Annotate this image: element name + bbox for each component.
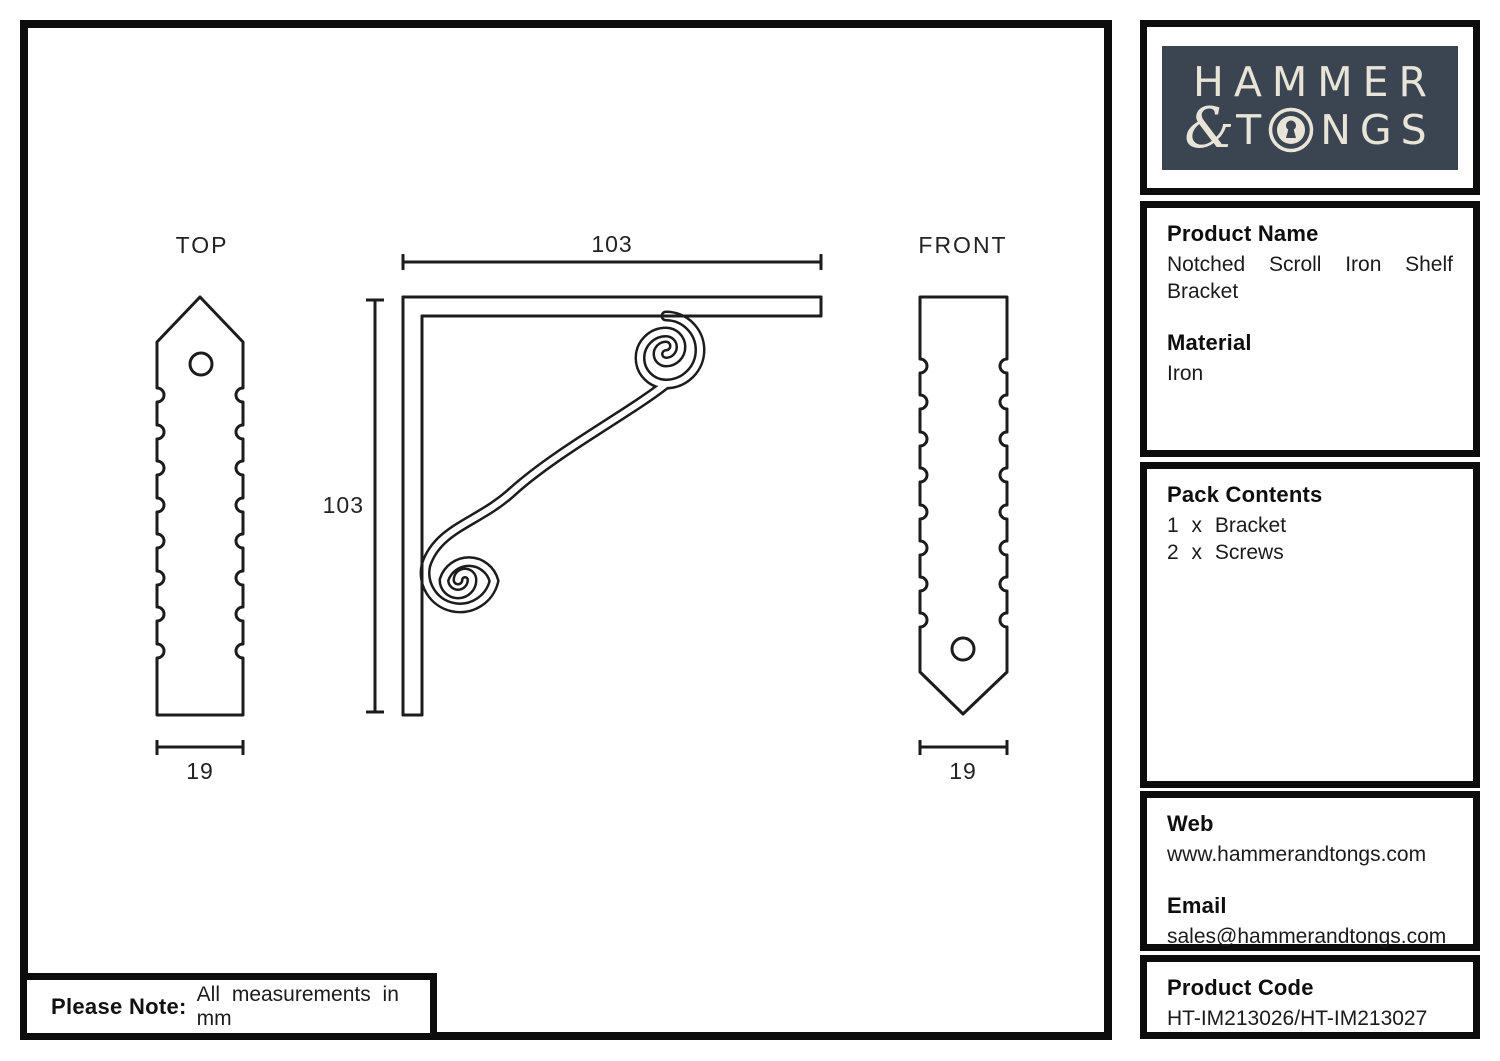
product-info-box: Product Name Notched Scroll Iron Shelf B… bbox=[1140, 201, 1480, 457]
bracket-outline bbox=[403, 297, 821, 715]
front-view-label: FRONT bbox=[918, 232, 1007, 258]
pack-contents-item: 1 x Bracket bbox=[1167, 512, 1453, 539]
email-value: sales@hammerandtongs.com bbox=[1167, 923, 1453, 950]
bracket-width-value: 103 bbox=[591, 231, 632, 257]
note-label: Please Note: bbox=[51, 994, 187, 1020]
scroll-curve-core bbox=[425, 384, 666, 608]
web-value: www.hammerandtongs.com bbox=[1167, 841, 1453, 868]
email-label: Email bbox=[1167, 893, 1453, 919]
top-view: TOP 19 bbox=[157, 232, 243, 784]
bracket-outline-restroke bbox=[403, 297, 821, 715]
front-view-outline bbox=[920, 297, 1007, 714]
product-name-value: Notched Scroll Iron Shelf Bracket bbox=[1167, 251, 1453, 305]
bracket-height-dimension: 103 bbox=[323, 300, 384, 712]
product-code-label: Product Code bbox=[1167, 975, 1453, 1001]
bracket-height-value: 103 bbox=[323, 492, 364, 518]
top-view-outline bbox=[157, 297, 243, 715]
top-view-dimension: 19 bbox=[157, 740, 243, 784]
web-label: Web bbox=[1167, 811, 1453, 837]
top-view-label: TOP bbox=[176, 232, 229, 258]
keyhole-icon bbox=[1268, 107, 1314, 153]
front-view-dimension: 19 bbox=[920, 740, 1007, 784]
side-view: 103 103 bbox=[323, 231, 821, 715]
material-label: Material bbox=[1167, 330, 1453, 356]
pack-contents-label: Pack Contents bbox=[1167, 482, 1453, 508]
pack-contents-item: 2 x Screws bbox=[1167, 539, 1453, 566]
scroll-top-spiral-core bbox=[640, 316, 700, 384]
material-value: Iron bbox=[1167, 360, 1453, 387]
top-view-dimension-value: 19 bbox=[186, 758, 214, 784]
front-view-dimension-value: 19 bbox=[949, 758, 977, 784]
logo-ampersand: & bbox=[1184, 107, 1234, 152]
logo-word-tongs-end: NGS bbox=[1320, 106, 1435, 154]
note-text: All measurements in mm bbox=[197, 983, 420, 1031]
product-code-box: Product Code HT-IM213026/HT-IM213027 bbox=[1140, 955, 1480, 1039]
pack-contents-box: Pack Contents 1 x Bracket 2 x Screws bbox=[1140, 462, 1480, 788]
bracket-width-dimension: 103 bbox=[403, 231, 821, 270]
note-box: Please Note: All measurements in mm bbox=[20, 973, 437, 1040]
logo-word-tongs-start: T bbox=[1236, 106, 1270, 154]
contact-box: Web www.hammerandtongs.com Email sales@h… bbox=[1140, 791, 1480, 951]
logo-box: HAMMER & T NGS bbox=[1140, 20, 1480, 195]
logo-word-tongs: & T NGS bbox=[1184, 106, 1435, 154]
front-view: FRONT 19 bbox=[918, 232, 1007, 784]
hammer-and-tongs-logo: HAMMER & T NGS bbox=[1162, 46, 1458, 170]
product-code-value: HT-IM213026/HT-IM213027 bbox=[1167, 1005, 1453, 1032]
product-name-label: Product Name bbox=[1167, 221, 1453, 247]
